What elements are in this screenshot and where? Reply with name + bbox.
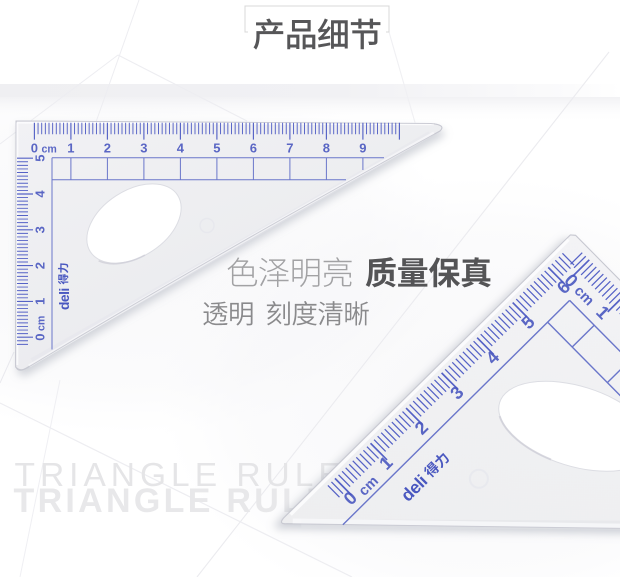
svg-text:7: 7 bbox=[286, 141, 293, 156]
svg-text:9: 9 bbox=[359, 141, 366, 156]
svg-text:1: 1 bbox=[33, 298, 48, 305]
svg-text:1: 1 bbox=[67, 141, 74, 156]
svg-text:cm: cm bbox=[42, 144, 57, 156]
svg-text:deli: deli bbox=[57, 288, 72, 310]
svg-text:2: 2 bbox=[104, 141, 111, 156]
svg-text:0: 0 bbox=[33, 334, 48, 341]
svg-text:6: 6 bbox=[250, 141, 257, 156]
svg-text:4: 4 bbox=[33, 190, 48, 198]
svg-text:5: 5 bbox=[213, 141, 220, 156]
svg-text:3: 3 bbox=[140, 141, 147, 156]
svg-text:3: 3 bbox=[33, 226, 48, 233]
svg-text:5: 5 bbox=[33, 155, 48, 162]
svg-text:2: 2 bbox=[33, 262, 48, 269]
svg-text:cm: cm bbox=[36, 316, 48, 331]
svg-text:4: 4 bbox=[177, 141, 185, 156]
svg-text:8: 8 bbox=[323, 141, 330, 156]
svg-text:0: 0 bbox=[31, 141, 38, 156]
